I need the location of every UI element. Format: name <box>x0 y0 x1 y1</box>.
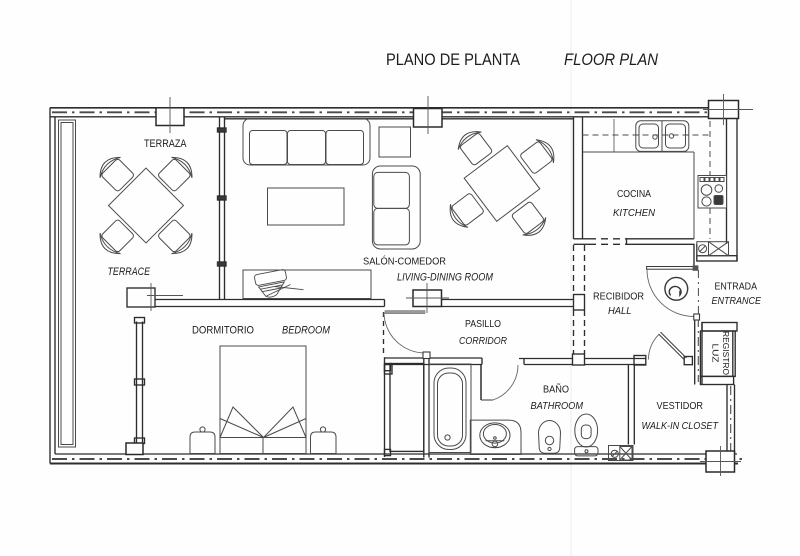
svg-text:COCINA: COCINA <box>617 189 651 200</box>
svg-text:DORMITORIO: DORMITORIO <box>192 324 254 336</box>
svg-text:REGISTRO: REGISTRO <box>721 331 730 375</box>
svg-text:RECIBIDOR: RECIBIDOR <box>593 292 644 303</box>
svg-text:PLANO DE PLANTA: PLANO DE PLANTA <box>386 51 520 69</box>
svg-text:ENTRADA: ENTRADA <box>715 282 758 293</box>
svg-text:WALK-IN CLOSET: WALK-IN CLOSET <box>642 421 719 432</box>
svg-text:BATHROOM: BATHROOM <box>531 401 584 412</box>
svg-text:ENTRANCE: ENTRANCE <box>712 296 762 307</box>
svg-text:VESTIDOR: VESTIDOR <box>657 401 704 412</box>
svg-text:TERRACE: TERRACE <box>108 266 151 278</box>
svg-text:KITCHEN: KITCHEN <box>613 208 655 219</box>
svg-text:PASILLO: PASILLO <box>465 319 501 330</box>
svg-text:FLOOR PLAN: FLOOR PLAN <box>564 51 658 69</box>
svg-text:TERRAZA: TERRAZA <box>144 138 187 150</box>
svg-text:LUZ: LUZ <box>711 344 720 363</box>
svg-text:CORRIDOR: CORRIDOR <box>459 336 507 347</box>
svg-text:BAÑO: BAÑO <box>543 383 569 396</box>
svg-text:SALÓN-COMEDOR: SALÓN-COMEDOR <box>363 255 446 268</box>
svg-text:BEDROOM: BEDROOM <box>282 324 331 336</box>
svg-text:LIVING-DINING ROOM: LIVING-DINING ROOM <box>397 272 493 284</box>
svg-text:HALL: HALL <box>608 306 632 317</box>
